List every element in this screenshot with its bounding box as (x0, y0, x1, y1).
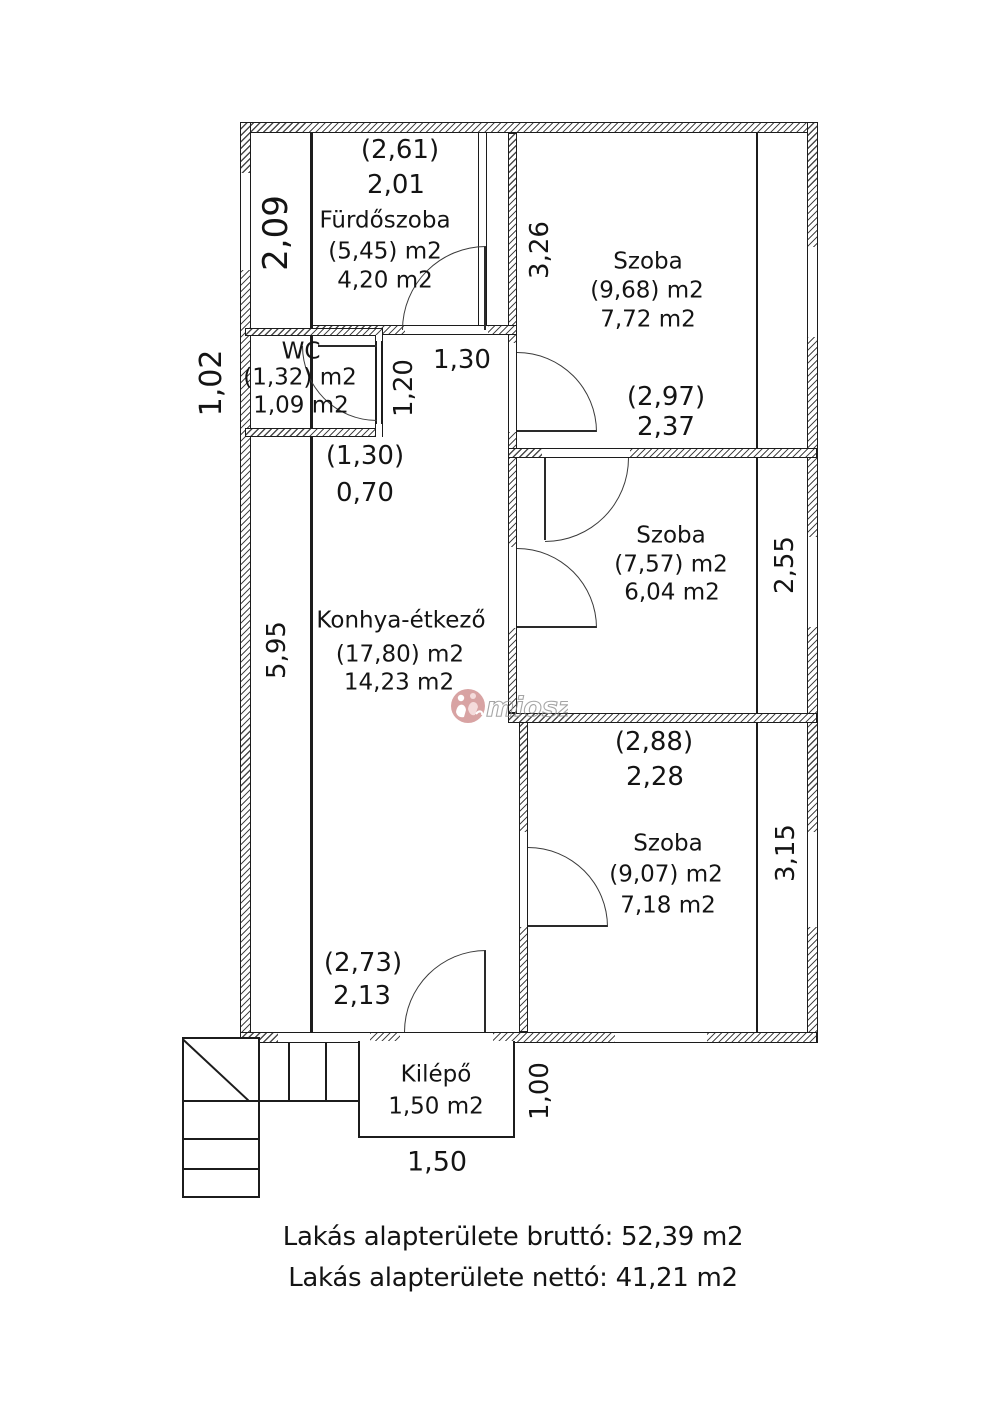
door-arc-room-middle (517, 548, 597, 628)
label-kitchen-name: Konhya-étkező (316, 610, 485, 633)
label-hall-area-gross: (1,30) (326, 443, 404, 469)
wall-line-right-strip (756, 133, 758, 1032)
label-bathroom-area-gross: (5,45) m2 (328, 241, 442, 264)
label-room-bottom-dim-gross: (2,88) (615, 729, 693, 755)
label-room-top-name: Szoba (613, 251, 682, 274)
label-kitchen-dim-gross: (2,73) (324, 950, 402, 976)
wall-line-left-strip (310, 133, 313, 1032)
label-bathroom-name: Fürdőszoba (319, 210, 450, 233)
label-kitchen-area-gross: (17,80) m2 (336, 644, 464, 667)
door-arc-room-top (517, 352, 597, 432)
dim-hall-height: 1,20 (391, 359, 417, 417)
dim-room-top-height: 3,26 (527, 221, 553, 279)
opening-room-middle-door (508, 547, 517, 628)
dim-left-upper: 1,02 (197, 350, 227, 417)
stairs-tread-3 (182, 1168, 260, 1170)
label-bathroom-area-net: 4,20 m2 (337, 270, 433, 293)
label-kitchen-area-net: 14,23 m2 (344, 672, 454, 695)
opening-room-top-to-middle-door (542, 448, 630, 458)
label-room-bottom-dim-net: 2,28 (626, 764, 684, 790)
label-room-top-area-gross: (9,68) m2 (590, 280, 704, 303)
label-room-middle-area-gross: (7,57) m2 (614, 554, 728, 577)
dim-room-middle-height: 2,55 (772, 536, 798, 594)
summary-gross-area: Lakás alapterülete bruttó: 52,39 m2 (283, 1224, 743, 1250)
label-kitchen-dim-net: 2,13 (333, 983, 391, 1009)
dim-kilepo-width: 1,50 (407, 1149, 467, 1176)
window-right-room-middle (807, 537, 818, 627)
window-bottom-room-bottom (615, 1032, 707, 1043)
label-room-top-dim-gross: (2,97) (627, 384, 705, 410)
miosz-watermark: miosz (448, 686, 568, 728)
label-room-top-area-net: 7,72 m2 (600, 309, 696, 332)
summary-net-area: Lakás alapterülete nettó: 41,21 m2 (288, 1265, 738, 1291)
dim-kilepo-height: 1,00 (527, 1062, 553, 1120)
window-left (240, 173, 251, 270)
door-arc-kitchen-exit (404, 950, 486, 1032)
label-hall-area-net: 0,70 (336, 480, 394, 506)
label-room-middle-name: Szoba (636, 525, 705, 548)
label-room-bottom-area-gross: (9,07) m2 (609, 864, 723, 887)
label-wc-area-gross: (1,32) m2 (243, 367, 357, 390)
opening-room-top-door (508, 343, 517, 432)
wall-wc-bottom (245, 428, 383, 437)
dim-left-lower: 5,95 (264, 621, 290, 679)
label-kilepo-area: 1,50 m2 (388, 1096, 484, 1119)
stairs-tread-1 (182, 1100, 360, 1102)
floor-plan: (2,61) 2,01 Fürdőszoba (5,45) m2 4,20 m2… (0, 0, 1000, 1416)
window-right-room-top (807, 247, 818, 337)
dim-hall-width: 1,30 (433, 347, 491, 373)
landing-step-line-2 (325, 1043, 327, 1102)
label-room-bottom-area-net: 7,18 m2 (620, 895, 716, 918)
door-arc-room-bottom (528, 847, 608, 927)
label-wc-area-net: 1,09 m2 (253, 395, 349, 418)
kilepo-outline (358, 1041, 515, 1138)
stairs-tread-2 (182, 1138, 260, 1140)
landing-step-line-1 (288, 1043, 290, 1102)
opening-room-bottom-door (519, 832, 528, 927)
label-kilepo-name: Kilépő (401, 1064, 472, 1087)
label-room-bottom-name: Szoba (633, 833, 702, 856)
door-arc-room-top-to-middle (545, 458, 629, 542)
wall-wc-top (245, 328, 383, 336)
opening-side-exit (278, 1032, 370, 1043)
label-room-middle-area-net: 6,04 m2 (624, 582, 720, 605)
svg-text:miosz: miosz (486, 692, 568, 723)
dim-room-bottom-height: 3,15 (773, 824, 799, 882)
window-right-room-bottom (807, 832, 818, 927)
label-wc-name: WC (282, 341, 321, 364)
stairs (182, 1037, 260, 1198)
label-bathroom-dim-gross: (2,61) (361, 137, 439, 163)
label-bathroom-dim-net: 2,01 (367, 172, 425, 198)
miosz-logo: miosz (448, 686, 568, 728)
label-room-top-dim-net: 2,37 (637, 414, 695, 440)
wall-top (240, 122, 817, 133)
dim-left-top: 2,09 (259, 195, 293, 271)
